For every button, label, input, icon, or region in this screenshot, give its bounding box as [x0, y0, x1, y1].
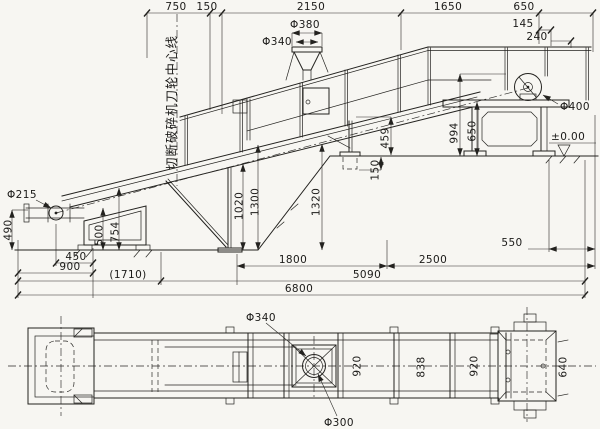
dim-phi380: Φ380 [290, 19, 320, 31]
level-triangle [558, 145, 570, 156]
dim-900: 900 [59, 261, 80, 273]
plan-feed-hopper [292, 336, 336, 398]
plan-view: Φ340 Φ300 920 838 920 640 [8, 307, 596, 429]
head-stand [443, 100, 569, 156]
dims-top-chain: 750 150 2150 1650 650 145 240 [144, 1, 596, 114]
dim-phi300: Φ300 [324, 417, 354, 429]
feed-funnel [286, 47, 328, 80]
dim-1800: 1800 [279, 254, 307, 266]
dim-750: 750 [165, 1, 186, 13]
dim-phi400: Φ400 [560, 101, 590, 113]
dim-145: 145 [512, 18, 533, 30]
dim-1300: 1300 [250, 188, 262, 216]
dims-left: Φ215 490 500 754 [3, 188, 122, 250]
dim-650-top: 650 [513, 1, 534, 13]
dim-phi340-plan: Φ340 [246, 312, 276, 324]
dim-phi340-elev: Φ340 [262, 36, 292, 48]
dim-490: 490 [3, 219, 15, 240]
dims-middle: 1320 1020 1300 [234, 144, 323, 250]
dim-920-left: 920 [352, 355, 364, 376]
plan-head-box [490, 307, 556, 422]
dim-640: 640 [558, 356, 570, 377]
dims-funnel: Φ380 Φ340 [262, 19, 322, 48]
dim-1650: 1650 [434, 1, 462, 13]
dim-5090: 5090 [353, 269, 381, 281]
dim-838: 838 [416, 356, 428, 377]
crusher-centerline-note: 切断破碎机刀轮中心线 [164, 35, 179, 170]
dim-459: 459 [380, 127, 392, 148]
head-pulley [515, 74, 542, 101]
buried-foundation [343, 156, 357, 169]
dim-1710: (1710) [109, 269, 146, 281]
conveyor-engineering-drawing: 切断破碎机刀轮中心线 750 150 2150 1650 650 1 [0, 0, 600, 429]
dim-650-right: 650 [467, 120, 479, 141]
dim-1320: 1320 [311, 188, 323, 216]
dim-6800: 6800 [285, 283, 313, 295]
dim-2150: 2150 [297, 1, 325, 13]
side-port [233, 352, 247, 382]
dim-1020: 1020 [234, 192, 246, 220]
dim-920-right: 920 [469, 355, 481, 376]
dims-plan: Φ340 Φ300 920 838 920 640 [246, 312, 570, 429]
technical-drawing-page: 切断破碎机刀轮中心线 750 150 2150 1650 650 1 [0, 0, 600, 429]
dim-150: 150 [196, 1, 217, 13]
dim-500: 500 [94, 224, 106, 245]
level-mark: ±0.00 [551, 131, 585, 143]
elevation-view: 切断破碎机刀轮中心线 750 150 2150 1650 650 1 [3, 1, 599, 299]
dims-bottom: 450 900 (1710) 5090 1800 2500 550 6800 [15, 115, 595, 299]
dim-240: 240 [526, 31, 547, 43]
dim-phi215: Φ215 [7, 189, 37, 201]
dim-754: 754 [110, 221, 122, 242]
dim-150-right: 150 [370, 159, 382, 180]
door-handle [306, 100, 310, 104]
tail-takeup [24, 204, 84, 222]
dim-994: 994 [449, 122, 461, 143]
dim-550: 550 [501, 237, 522, 249]
tail-drum [46, 341, 74, 392]
access-door [303, 88, 329, 114]
dim-2500: 2500 [419, 254, 447, 266]
